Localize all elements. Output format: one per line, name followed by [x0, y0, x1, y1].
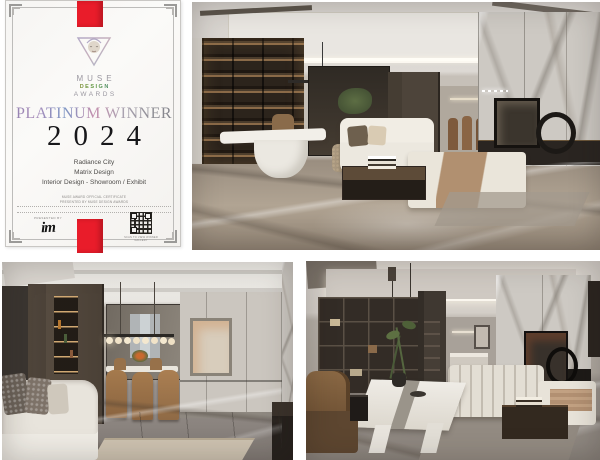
dark-pillow	[347, 125, 369, 147]
dark-vase	[392, 373, 406, 387]
bottle	[58, 320, 61, 329]
muse-triangle-face-icon	[74, 35, 114, 67]
marble-column	[282, 262, 293, 418]
cord-canopy	[388, 267, 396, 281]
bottle	[70, 350, 73, 358]
qr-finder	[145, 213, 151, 219]
book-stack	[368, 156, 396, 169]
certificate-sheet: MUSE DESIGN AWARDS PLATINUM WINNER 2024 …	[5, 0, 181, 247]
glass-globe-lights	[106, 337, 113, 344]
chandelier-bar	[104, 334, 174, 337]
books-on-table	[516, 397, 542, 407]
chandelier-cord	[154, 282, 155, 334]
award-certificate: MUSE DESIGN AWARDS PLATINUM WINNER 2024 …	[5, 0, 181, 247]
column-niche	[424, 321, 440, 371]
beige-rug	[91, 438, 255, 460]
collage-canvas: MUSE DESIGN AWARDS PLATINUM WINNER 2024 …	[0, 0, 600, 460]
leaning-artwork	[494, 98, 540, 148]
light-pillow	[47, 383, 69, 414]
designer-name: Matrix Design	[6, 168, 182, 178]
corner-ornament	[9, 229, 23, 243]
qr-code	[130, 212, 152, 234]
shelf-object	[350, 369, 362, 376]
photo-showroom-living-room	[192, 2, 600, 250]
muse-logo: MUSE DESIGN AWARDS	[6, 35, 182, 98]
flower-centerpiece	[132, 350, 148, 362]
shelf-object	[368, 345, 377, 353]
tea-bowl	[410, 391, 426, 397]
logo-text-design: DESIGN	[6, 84, 182, 90]
wall-spotlights	[482, 90, 508, 92]
photo-lounge-tea-table	[306, 261, 600, 460]
red-ribbon-top	[77, 1, 103, 27]
project-name: Radiance City	[6, 158, 182, 168]
award-year: 2024	[6, 120, 182, 153]
award-category: Interior Design - Showroom / Exhibit	[6, 178, 182, 188]
fine-print: MUSE AWARD OFFICIAL CERTIFICATE PRESENTE…	[6, 195, 182, 205]
qr-finder	[131, 213, 137, 219]
logo-text-muse: MUSE	[6, 74, 182, 83]
corner-ornament	[9, 4, 23, 18]
beige-pillow	[367, 125, 386, 145]
marble-pilaster	[192, 38, 202, 164]
qr-caption: SCAN TO VIEW WINNER GALLERY	[120, 236, 162, 242]
logo-text-awards: AWARDS	[6, 91, 182, 98]
bonsai-plant	[338, 88, 372, 114]
qr-finder	[131, 227, 137, 233]
shelf-object	[330, 319, 340, 326]
hall-framed-art	[474, 325, 490, 349]
dark-coffee-table	[502, 405, 568, 439]
dining-chair-far	[150, 358, 162, 370]
dark-side-cabinet	[588, 281, 600, 357]
iaa-im-logo: im	[26, 219, 71, 238]
red-ribbon-bottom	[77, 219, 103, 253]
corner-ornament	[163, 4, 177, 18]
photo-dining-area	[2, 262, 293, 460]
bottle	[64, 334, 67, 343]
area-rug	[434, 192, 589, 226]
dining-chair	[448, 118, 458, 150]
wreath-sculpture	[536, 112, 576, 154]
dining-chair	[462, 116, 472, 150]
dining-chair-far	[114, 358, 126, 370]
dark-coffee-table	[342, 166, 426, 200]
framed-artwork	[190, 318, 232, 376]
corner-ornament	[163, 229, 177, 243]
recipient-block: Radiance City Matrix Design Interior Des…	[6, 158, 182, 188]
black-side-table	[350, 395, 368, 421]
chandelier-cord	[120, 282, 121, 334]
